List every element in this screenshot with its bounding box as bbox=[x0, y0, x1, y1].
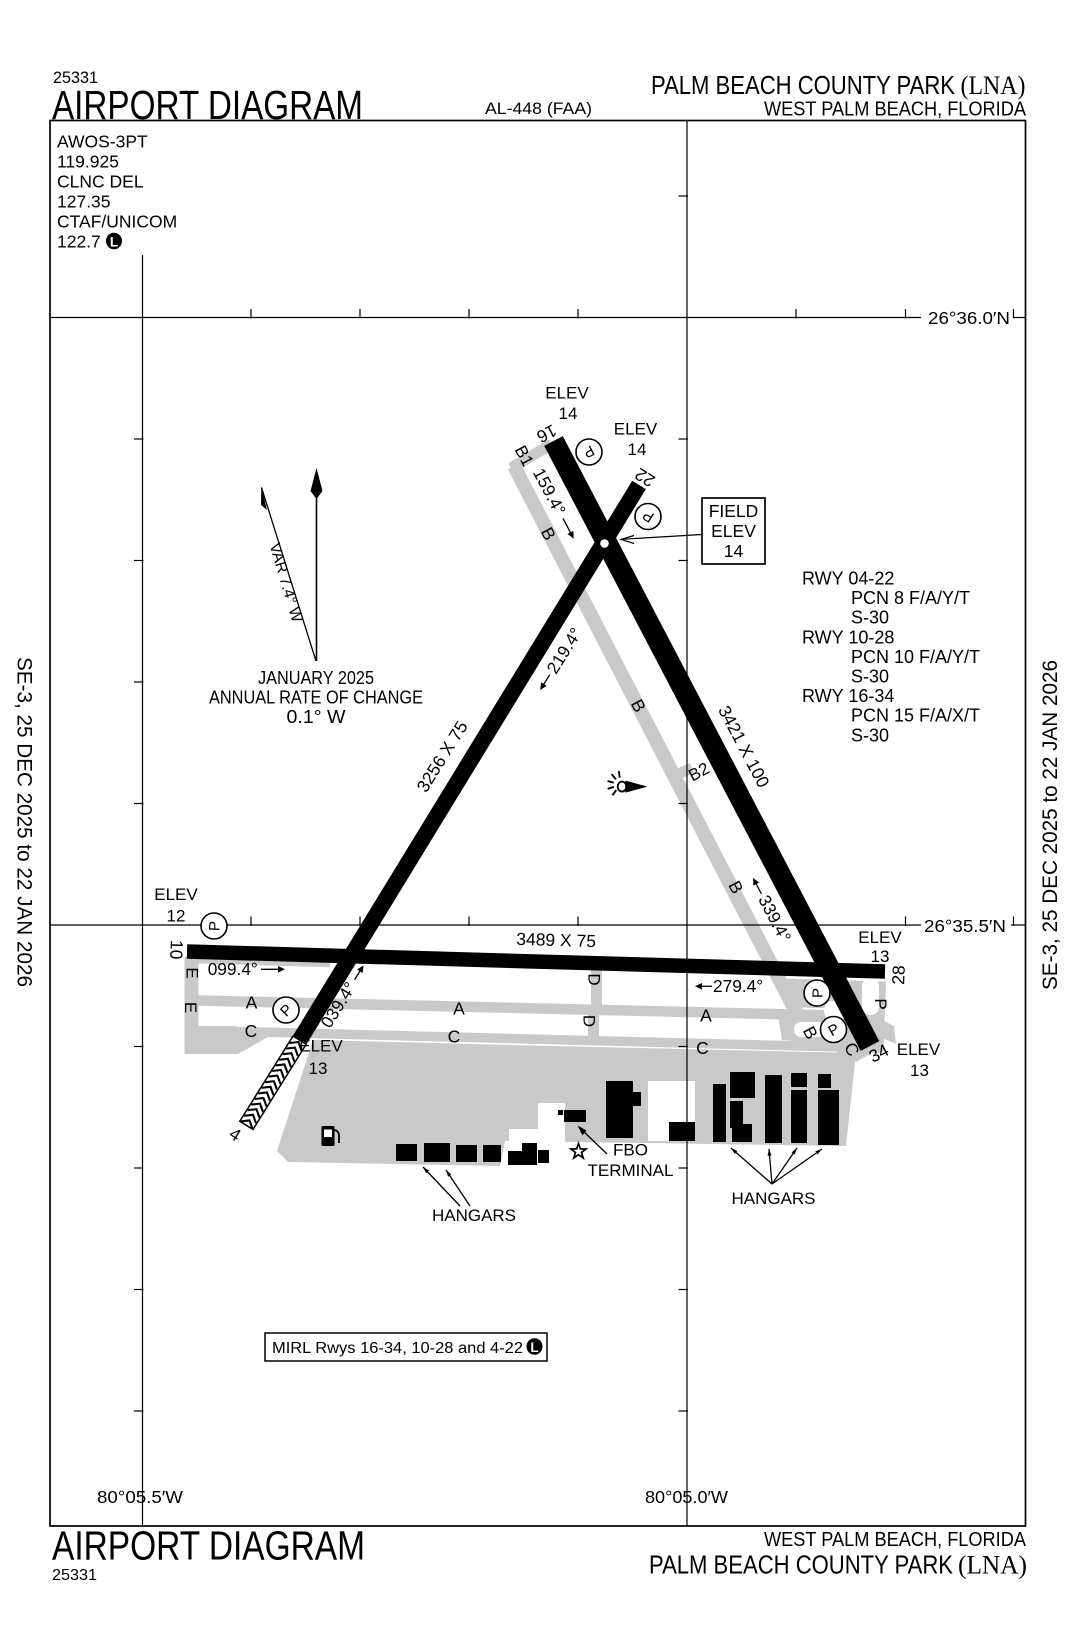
svg-text:AWOS-3PT: AWOS-3PT bbox=[57, 132, 148, 152]
svg-text:CTAF/UNICOM: CTAF/UNICOM bbox=[57, 212, 177, 232]
svg-text:13: 13 bbox=[309, 1059, 328, 1078]
svg-text:SE-3, 25 DEC 2025 to 22 JAN: SE-3, 25 DEC 2025 to 22 JAN 2026 bbox=[1039, 660, 1062, 990]
svg-text:L: L bbox=[110, 235, 118, 250]
svg-text:10: 10 bbox=[166, 940, 187, 960]
svg-text:FIELD: FIELD bbox=[709, 501, 759, 521]
svg-text:C: C bbox=[448, 1027, 461, 1047]
svg-text:12: 12 bbox=[167, 907, 186, 926]
svg-text:P: P bbox=[809, 988, 826, 998]
svg-text:L: L bbox=[530, 1340, 538, 1355]
svg-text:26°36.0′N: 26°36.0′N bbox=[928, 308, 1010, 328]
svg-text:P: P bbox=[206, 921, 223, 932]
svg-text:RWY 04-22: RWY 04-22 bbox=[802, 569, 894, 589]
svg-text:26°35.5′N: 26°35.5′N bbox=[924, 916, 1006, 936]
svg-text:13: 13 bbox=[871, 947, 890, 966]
svg-text:ELEV: ELEV bbox=[154, 885, 198, 904]
svg-text:ANNUAL RATE OF CHANGE: ANNUAL RATE OF CHANGE bbox=[209, 687, 423, 708]
svg-text:127.35: 127.35 bbox=[57, 192, 111, 212]
svg-text:ELEV: ELEV bbox=[897, 1040, 941, 1059]
svg-text:HANGARS: HANGARS bbox=[432, 1206, 516, 1225]
svg-text:0.1° W: 0.1° W bbox=[287, 706, 347, 727]
svg-text:C: C bbox=[696, 1038, 709, 1058]
svg-text:MIRL Rwys 16-34, 10-28 and 4-2: MIRL Rwys 16-34, 10-28 and 4-22 bbox=[272, 1340, 523, 1357]
svg-text:ELEV: ELEV bbox=[545, 384, 589, 403]
svg-text:WEST PALM BEACH, FLORIDA: WEST PALM BEACH, FLORIDA bbox=[764, 1528, 1026, 1551]
svg-text:RWY 16-34: RWY 16-34 bbox=[802, 686, 894, 706]
svg-text:FBO: FBO bbox=[613, 1141, 648, 1160]
svg-text:28: 28 bbox=[888, 965, 909, 985]
svg-text:AIRPORT DIAGRAM: AIRPORT DIAGRAM bbox=[52, 1523, 365, 1569]
svg-text:13: 13 bbox=[910, 1061, 929, 1080]
svg-text:14: 14 bbox=[628, 440, 647, 459]
svg-text:ELEV: ELEV bbox=[614, 420, 658, 439]
svg-text:ELEV: ELEV bbox=[299, 1037, 343, 1056]
svg-text:D: D bbox=[585, 973, 604, 985]
svg-text:JANUARY 2025: JANUARY 2025 bbox=[258, 667, 374, 688]
svg-text:25331: 25331 bbox=[52, 1567, 97, 1584]
svg-text:(LNA): (LNA) bbox=[961, 71, 1026, 100]
svg-text:E: E bbox=[181, 1002, 200, 1013]
svg-text:P: P bbox=[871, 998, 890, 1009]
svg-text:119.925: 119.925 bbox=[57, 152, 119, 172]
svg-text:A: A bbox=[700, 1006, 712, 1026]
svg-text:PCN 10 F/A/Y/T: PCN 10 F/A/Y/T bbox=[851, 647, 980, 667]
svg-text:099.4°: 099.4° bbox=[208, 959, 258, 979]
svg-text:ELEV: ELEV bbox=[858, 928, 902, 947]
svg-text:S-30: S-30 bbox=[851, 725, 889, 745]
svg-text:CLNC DEL: CLNC DEL bbox=[57, 172, 144, 192]
svg-text:AL-448 (FAA): AL-448 (FAA) bbox=[485, 100, 592, 118]
svg-text:14: 14 bbox=[724, 541, 744, 561]
svg-text:122.7: 122.7 bbox=[57, 232, 101, 252]
svg-text:SE-3, 25 DEC 2025 to 22 JAN: SE-3, 25 DEC 2025 to 22 JAN 2026 bbox=[13, 657, 36, 987]
svg-text:E: E bbox=[182, 967, 201, 978]
svg-text:PALM BEACH COUNTY PARK: PALM BEACH COUNTY PARK bbox=[651, 70, 956, 100]
svg-text:D: D bbox=[580, 1015, 599, 1027]
svg-text:S-30: S-30 bbox=[851, 608, 889, 628]
svg-text:279.4°: 279.4° bbox=[713, 976, 763, 996]
svg-text:PALM BEACH COUNTY PARK: PALM BEACH COUNTY PARK bbox=[649, 1550, 954, 1580]
svg-text:WEST PALM BEACH, FLORIDA: WEST PALM BEACH, FLORIDA bbox=[764, 98, 1026, 121]
svg-text:ELEV: ELEV bbox=[711, 521, 756, 541]
svg-text:PCN 15 F/A/X/T: PCN 15 F/A/X/T bbox=[851, 706, 980, 726]
svg-text:S-30: S-30 bbox=[851, 667, 889, 687]
svg-text:RWY 10-28: RWY 10-28 bbox=[802, 627, 894, 647]
svg-text:C: C bbox=[245, 1021, 258, 1041]
svg-text:A: A bbox=[246, 993, 258, 1013]
svg-text:80°05.0′W: 80°05.0′W bbox=[645, 1487, 728, 1507]
svg-text:3489 X 75: 3489 X 75 bbox=[516, 929, 596, 951]
svg-text:PCN 8 F/A/Y/T: PCN 8 F/A/Y/T bbox=[851, 588, 970, 608]
svg-text:A: A bbox=[453, 999, 465, 1019]
svg-text:TERMINAL: TERMINAL bbox=[588, 1161, 674, 1180]
svg-text:80°05.5′W: 80°05.5′W bbox=[97, 1487, 184, 1507]
svg-text:HANGARS: HANGARS bbox=[732, 1189, 816, 1208]
svg-text:(LNA): (LNA) bbox=[958, 1551, 1027, 1580]
svg-text:AIRPORT DIAGRAM: AIRPORT DIAGRAM bbox=[52, 82, 363, 128]
svg-text:14: 14 bbox=[559, 404, 578, 423]
